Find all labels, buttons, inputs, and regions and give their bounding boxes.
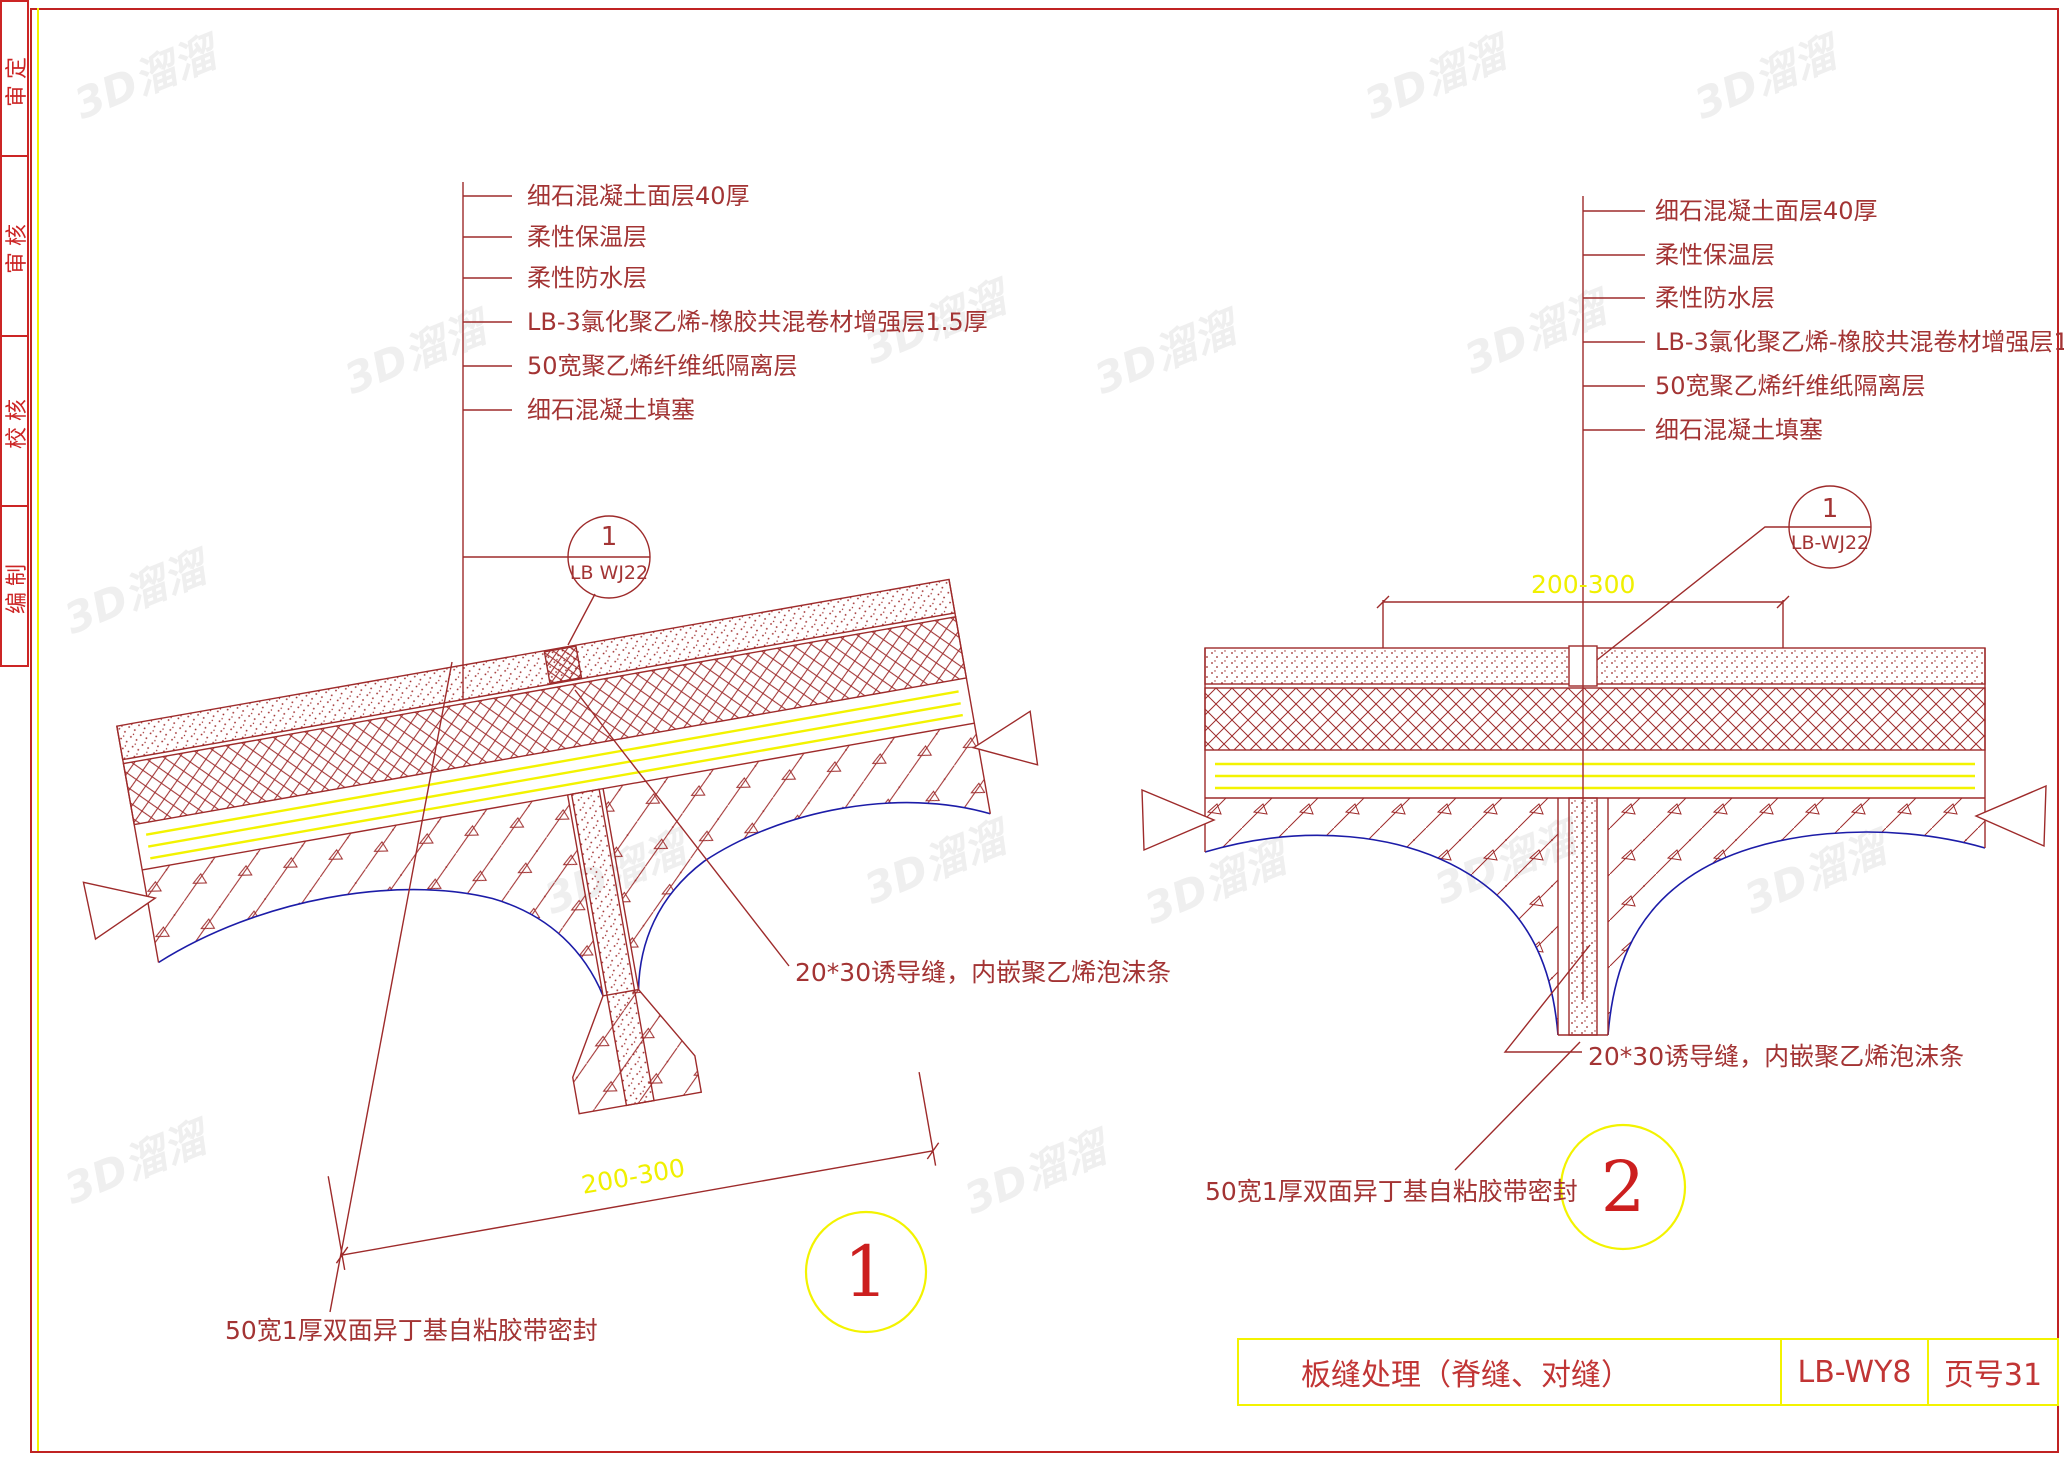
label-bracket — [463, 182, 512, 700]
slab-right-panel — [603, 723, 1010, 989]
break-wedge-right — [1976, 786, 2046, 846]
layer-label: 细石混凝土填塞 — [527, 396, 695, 424]
dimension-text: 200-300 — [1531, 570, 1635, 599]
callout-code: LB WJ22 — [563, 562, 655, 584]
layer-label: 柔性防水层 — [1655, 284, 1775, 312]
drawing-title: 板缝处理（脊缝、对缝） — [1239, 1340, 1780, 1404]
tape-note-leader — [1455, 1042, 1580, 1170]
layer-label: LB-3氯化聚乙烯-橡胶共混卷材增强层1.5厚 — [527, 308, 988, 336]
callout-number: 1 — [591, 522, 627, 552]
break-wedge-left — [1142, 790, 1214, 850]
joint-foam-strip — [544, 646, 581, 683]
joint-note: 20*30诱导缝，内嵌聚乙烯泡沫条 — [795, 953, 1171, 989]
callout-number: 1 — [1812, 494, 1848, 524]
insulation-band — [1205, 688, 1985, 750]
title-block: 板缝处理（脊缝、对缝） LB-WY8 页号31 — [1237, 1338, 2059, 1406]
layer-label: 50宽聚乙烯纤维纸隔离层 — [527, 352, 798, 380]
drawing-code: LB-WY8 — [1780, 1340, 1927, 1404]
layer-label: 柔性防水层 — [527, 264, 647, 292]
tape-note: 50宽1厚双面异丁基自粘胶带密封 — [225, 1311, 598, 1347]
tape-note: 50宽1厚双面异丁基自粘胶带密封 — [1205, 1172, 1578, 1208]
callout-code: LB-WJ22 — [1782, 532, 1878, 554]
layer-label: 50宽聚乙烯纤维纸隔离层 — [1655, 372, 1926, 400]
cad-drawing-page: { "colors": { "line_red": "#9e2b2b", "te… — [0, 0, 2064, 1460]
waterproof-membrane-lines — [1215, 764, 1975, 788]
joint-note: 20*30诱导缝，内嵌聚乙烯泡沫条 — [1588, 1037, 1964, 1073]
layer-label: 细石混凝土填塞 — [1655, 416, 1823, 444]
rib-foot — [560, 982, 702, 1114]
layer-label: 细石混凝土面层40厚 — [1655, 197, 1878, 225]
slab-left-panel — [1205, 798, 1558, 1035]
layer-label: 柔性保温层 — [1655, 241, 1775, 269]
detail-2-number: 2 — [1573, 1145, 1673, 1229]
layer-label: LB-3氯化聚乙烯-橡胶共混卷材增强层1.5厚 — [1655, 328, 2064, 356]
slab-right-panel — [1608, 798, 1985, 1035]
layer-label: 柔性保温层 — [527, 223, 647, 251]
layer-label: 细石混凝土面层40厚 — [527, 182, 750, 210]
detail-1-number: 1 — [816, 1230, 916, 1314]
page-number: 页号31 — [1927, 1340, 2057, 1404]
detail-1-drawing — [58, 570, 1105, 1303]
